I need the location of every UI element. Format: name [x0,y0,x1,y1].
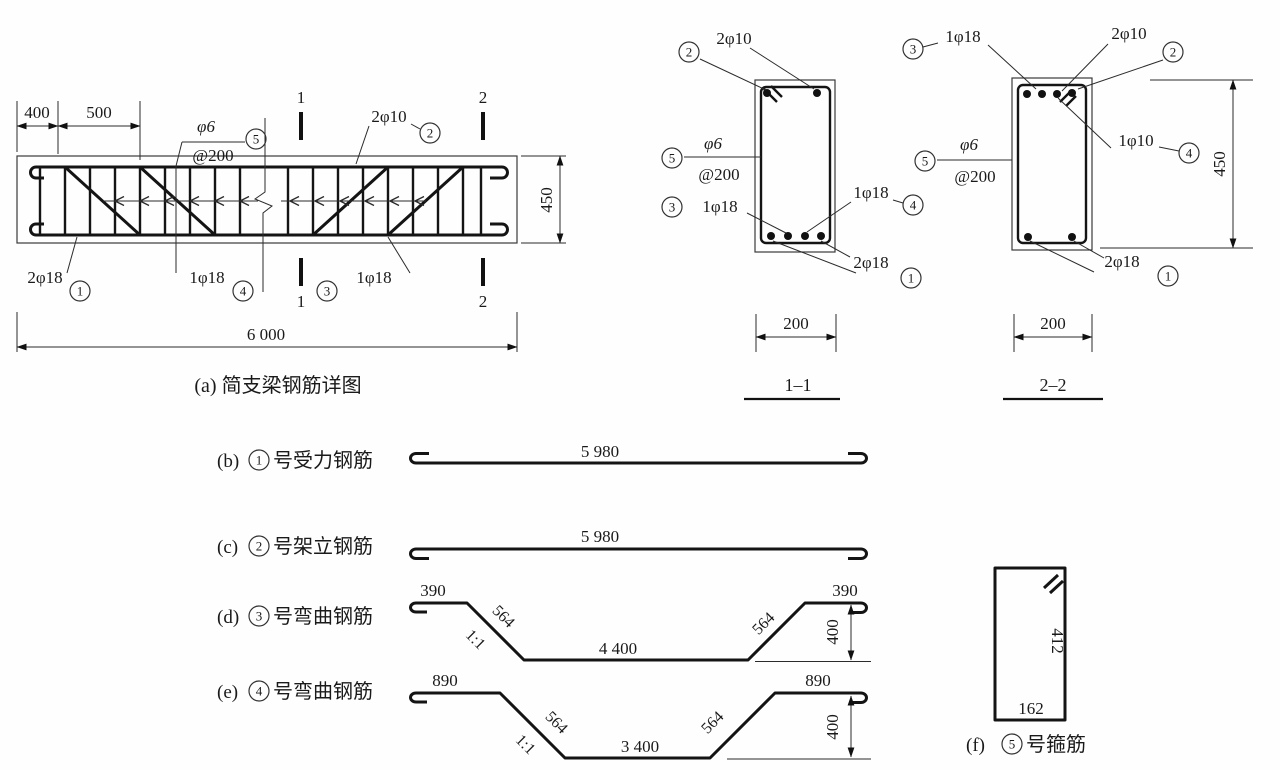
connector-line [411,124,420,129]
caption-b-suffix: 号受力钢筋 [273,449,373,472]
bar-shape-e: (e) 4 号弯曲钢筋 890 564 1:1 3 400 564 890 40… [217,671,871,759]
straight-bar-with-hooks [411,454,867,464]
rebar-dot [1024,233,1032,241]
rebar-dot [1038,90,1046,98]
callout-num-4: 4 [240,284,247,299]
extension-lines [1100,80,1253,248]
dim-text-564-right: 564 [698,708,727,737]
section-mark-1-top-label: 1 [297,88,306,107]
dim-text-450: 450 [1210,151,1229,177]
dim-text-6000: 6 000 [247,325,285,344]
leader-lines [807,200,903,232]
label-2phi10: 2φ10 [1111,24,1146,43]
bottom-longitudinal-bar [31,224,508,235]
stirrup-dia-label: φ6 [197,117,215,136]
caption-c-num: 2 [256,539,263,554]
caption-b-num: 1 [256,453,263,468]
leader-lines [1030,241,1104,272]
label-phi6: φ6 [704,134,722,153]
top-bar-label: 2φ10 [371,107,406,126]
callout-num-5: 5 [922,154,929,169]
dim-200: 200 [756,314,836,352]
callout-num-4: 4 [910,198,917,213]
caption-a: (a) 简支梁钢筋详图 [194,374,361,397]
dim-text-400: 400 [24,103,50,122]
leader-line [747,213,786,233]
label-1phi18: 1φ18 [853,183,888,202]
callout-left-1phi18: 3 1φ18 [662,197,786,233]
dim-text-5980: 5 980 [581,527,619,546]
caption-f-suffix: 号箍筋 [1026,733,1086,756]
caption-c-suffix: 号架立钢筋 [273,535,373,558]
label-1phi18: 1φ18 [945,27,980,46]
caption-d-prefix: (d) [217,607,239,628]
stirrup-hook-marks [1044,575,1063,593]
callout-num-5: 5 [253,132,260,147]
dim-200: 200 [1014,314,1092,352]
leader-line [356,126,369,164]
label-2phi10: 2φ10 [716,29,751,48]
caption-d-num: 3 [256,609,263,624]
rebar-dot [1053,90,1061,98]
bar-shape-d: (d) 3 号弯曲钢筋 390 564 1:1 4 400 564 390 40… [217,581,871,662]
straight-bar-with-hooks [411,549,867,559]
dim-text-200: 200 [1040,314,1066,333]
dim-text-890-right: 890 [805,671,831,690]
rebar-detail-drawing: 400 500 φ6 @200 5 2φ10 2 1 1 2 [0,0,1280,770]
rebar-dot [1068,89,1076,97]
rebar-dot [1023,90,1031,98]
callout-bottom-2phi18: 2φ18 1 [773,241,921,288]
leader-lines [773,241,856,273]
rebar-dot [767,232,775,240]
leader-lines [700,48,814,90]
callout-num-1: 1 [77,284,84,299]
top-longitudinal-bar [31,167,508,178]
caption-b-prefix: (b) [217,451,239,472]
dim-text-450: 450 [537,187,556,213]
stirrup-shape-f: 412 162 (f) 5 号箍筋 [966,568,1086,756]
rebar-dot [813,89,821,97]
dim-text-1-1: 1:1 [462,627,488,653]
dim-text-162: 162 [1018,699,1044,718]
callout-num-5: 5 [669,151,676,166]
dim-text-4400: 4 400 [599,639,637,658]
rebar-dot [817,232,825,240]
callout-num-3: 3 [669,200,676,215]
dim-text-5980: 5 980 [581,442,619,461]
dim-text-200: 200 [783,314,809,333]
dim-text-3400: 3 400 [621,737,659,756]
section-2-2: 3 1φ18 2φ10 2 5 φ6 @200 1φ10 4 450 [903,24,1253,399]
dim-text-564-left: 564 [542,708,571,737]
caption-e-prefix: (e) [217,682,238,703]
label-2phi18: 2φ18 [1104,252,1139,271]
rebar-dot [1068,233,1076,241]
leader-line [176,142,182,199]
dim-400-500: 400 500 [17,101,140,160]
concrete-outline [755,80,835,252]
label-at200: @200 [954,167,995,186]
callout-num-2: 2 [1170,45,1177,60]
bar-label-2phi18: 2φ18 [27,268,62,287]
dim-text-412: 412 [1048,628,1067,654]
callout-right-1phi18: 1φ18 4 [807,183,923,232]
section-mark-1: 1 1 [297,88,306,311]
bar-label-1phi18: 1φ18 [356,268,391,287]
section-mark-1-bottom-label: 1 [297,292,306,311]
dim-text-890-left: 890 [432,671,458,690]
section-mark-2-bottom-label: 2 [479,292,488,311]
label-2phi18: 2φ18 [853,253,888,272]
section-1-1: 2 2φ10 5 φ6 @200 3 1φ18 1φ18 4 2φ18 1 [662,29,923,399]
label-1phi10: 1φ10 [1118,131,1153,150]
label-1phi18: 1φ18 [702,197,737,216]
callout-stirrup: 5 φ6 @200 [662,134,761,184]
dim-text-400: 400 [823,619,842,645]
stirrup-outline [761,87,830,243]
callout-topright-2phi10: 2φ10 2 [1062,24,1183,91]
drawing-canvas: 400 500 φ6 @200 5 2φ10 2 1 1 2 [0,0,1280,770]
dim-text-1-1: 1:1 [512,732,538,758]
callout-right-1phi10: 1φ10 4 [1058,98,1199,163]
label-phi6: φ6 [960,135,978,154]
leader-lines [923,43,1036,89]
bottom-bar-callout-1: 2φ18 1 [27,237,90,301]
bar-shape-c: (c) 2 号架立钢筋 5 980 [217,527,867,559]
concrete-outline [1012,78,1092,250]
callout-stirrup: 5 φ6 @200 [915,135,1012,186]
dim-text-390-left: 390 [420,581,446,600]
caption-c-prefix: (c) [217,537,238,558]
rebar-dot [763,89,771,97]
callout-num-2: 2 [686,45,693,60]
dim-text-400: 400 [823,714,842,740]
section-mark-2-top-label: 2 [479,88,488,107]
caption-e-num: 4 [256,684,263,699]
callout-num-3: 3 [910,42,917,57]
dim-6000: 6 000 [17,312,517,352]
callout-num-3: 3 [324,284,331,299]
label-at200: @200 [698,165,739,184]
beam-elevation: 400 500 φ6 @200 5 2φ10 2 1 1 2 [17,88,566,397]
callout-num-1: 1 [908,271,915,286]
caption-f-prefix: (f) [966,735,985,756]
callout-num-4: 4 [1186,146,1193,161]
rebar-dot [801,232,809,240]
dim-text-390-right: 390 [832,581,858,600]
dim-450: 450 [521,156,566,243]
caption-e-suffix: 号弯曲钢筋 [273,680,373,703]
concrete-outline [17,156,517,243]
stirrup-outline [1018,85,1086,243]
callout-num-1: 1 [1165,269,1172,284]
callout-topleft-1phi18: 3 1φ18 [903,27,1036,89]
caption-f-num: 5 [1009,737,1016,752]
bar-shape-b: (b) 1 号受力钢筋 5 980 [217,442,867,472]
leader-line [67,237,77,273]
rebar-dot [784,232,792,240]
dim-text-500: 500 [86,103,112,122]
callout-num-2: 2 [427,126,434,141]
dim-450: 450 [1100,80,1253,248]
caption-d-suffix: 号弯曲钢筋 [273,605,373,628]
callout-top-2phi10: 2 2φ10 [679,29,814,90]
bar-label-1phi18: 1φ18 [189,268,224,287]
stirrup-spacing-label: @200 [192,146,233,165]
bottom-bar-callout-3: 3 1φ18 [317,237,410,301]
section-title-1-1: 1–1 [785,375,812,395]
section-title-2-2: 2–2 [1040,375,1067,395]
